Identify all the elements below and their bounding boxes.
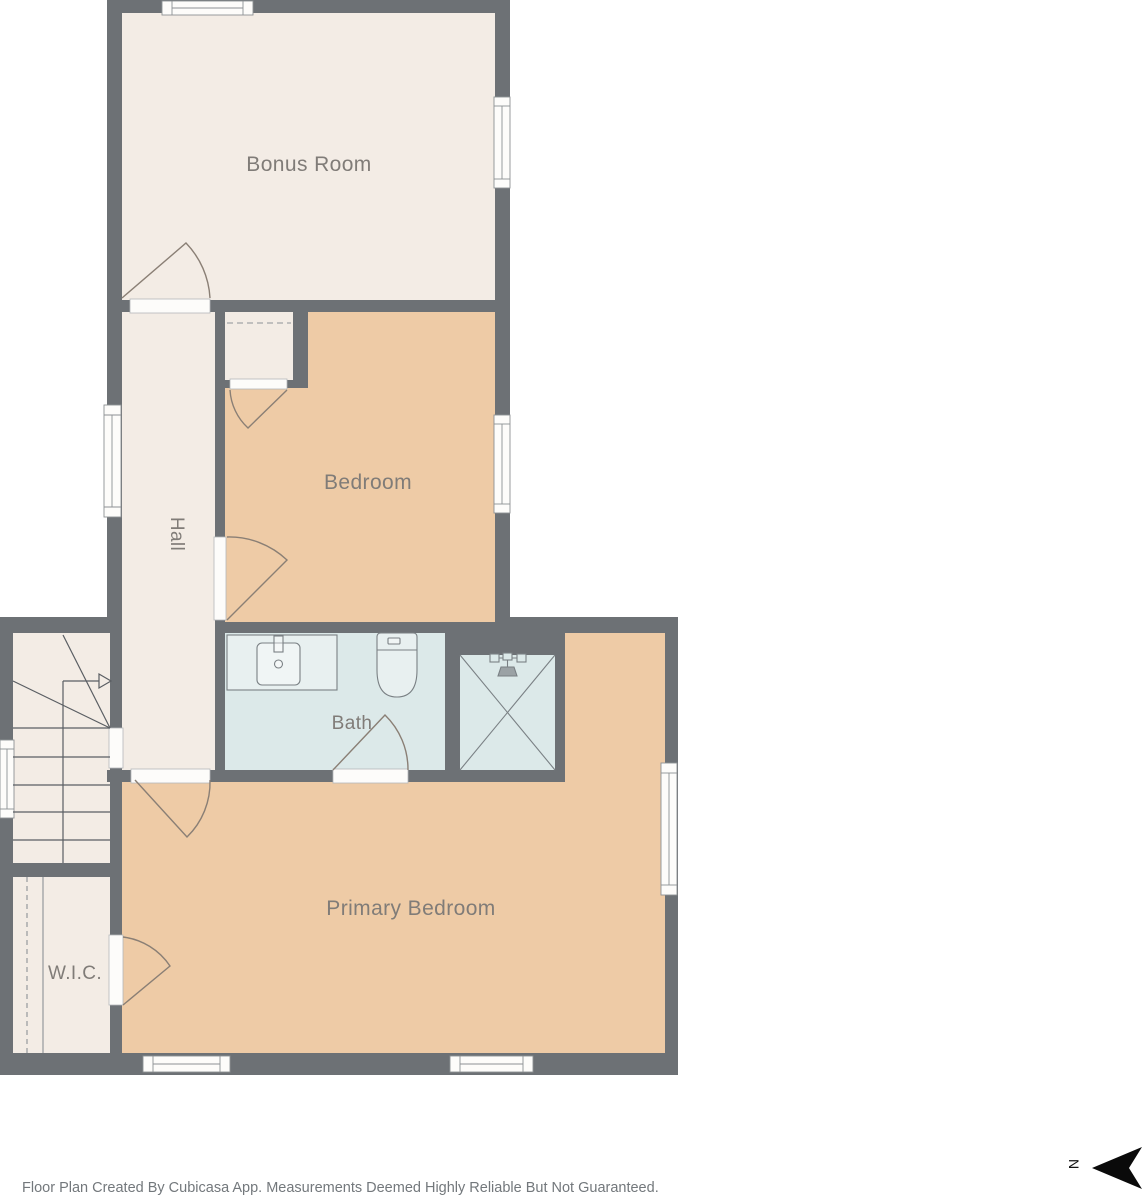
wall <box>0 617 13 1075</box>
room-label-hall: Hall <box>165 517 187 551</box>
vanity-sink-icon <box>227 635 337 690</box>
shower-head-sprayer <box>498 667 517 676</box>
wall <box>555 633 565 770</box>
wall <box>0 617 110 633</box>
room-label-primary-bedroom: Primary Bedroom <box>326 897 495 921</box>
wall <box>293 300 308 388</box>
wall <box>107 0 122 633</box>
window-icon <box>494 415 510 513</box>
window-icon <box>661 763 677 895</box>
wall <box>110 633 122 728</box>
window-icon <box>450 1056 533 1072</box>
room-label-bedroom: Bedroom <box>324 471 412 495</box>
primary-bedroom-floor-upper <box>565 633 665 782</box>
bedroom-door-opening <box>214 537 226 620</box>
wall <box>110 768 122 867</box>
wic-door-opening <box>109 935 123 1005</box>
wall <box>0 1053 678 1075</box>
north-arrow-icon <box>1092 1147 1142 1189</box>
wall <box>445 630 565 655</box>
stairs-floor <box>13 633 110 863</box>
footer-disclaimer: Floor Plan Created By Cubicasa App. Meas… <box>22 1180 659 1196</box>
stairs-hall-opening <box>109 728 123 768</box>
north-letter: N <box>1066 1159 1082 1169</box>
closet-door-opening <box>230 379 287 389</box>
room-label-bath: Bath <box>332 713 373 735</box>
window-icon <box>494 97 510 188</box>
primary-bedroom-door-opening <box>131 769 210 783</box>
window-icon <box>162 1 253 15</box>
floor-plan-page: Bonus Room Bedroom Hall Bath Primary Bed… <box>0 0 1145 1200</box>
bonus-room-door-opening <box>130 299 210 313</box>
room-label-wic: W.I.C. <box>48 963 102 985</box>
room-label-bonus-room: Bonus Room <box>246 153 371 177</box>
wall <box>215 300 225 770</box>
bedroom-closet-floor <box>225 312 293 380</box>
toilet-icon <box>377 633 417 697</box>
window-icon <box>104 405 121 517</box>
wall <box>445 633 460 770</box>
window-icon <box>0 740 14 818</box>
window-icon <box>143 1056 230 1072</box>
wall <box>0 863 122 877</box>
bath-door-opening <box>333 769 408 783</box>
floor-plan-drawing <box>0 0 1145 1200</box>
